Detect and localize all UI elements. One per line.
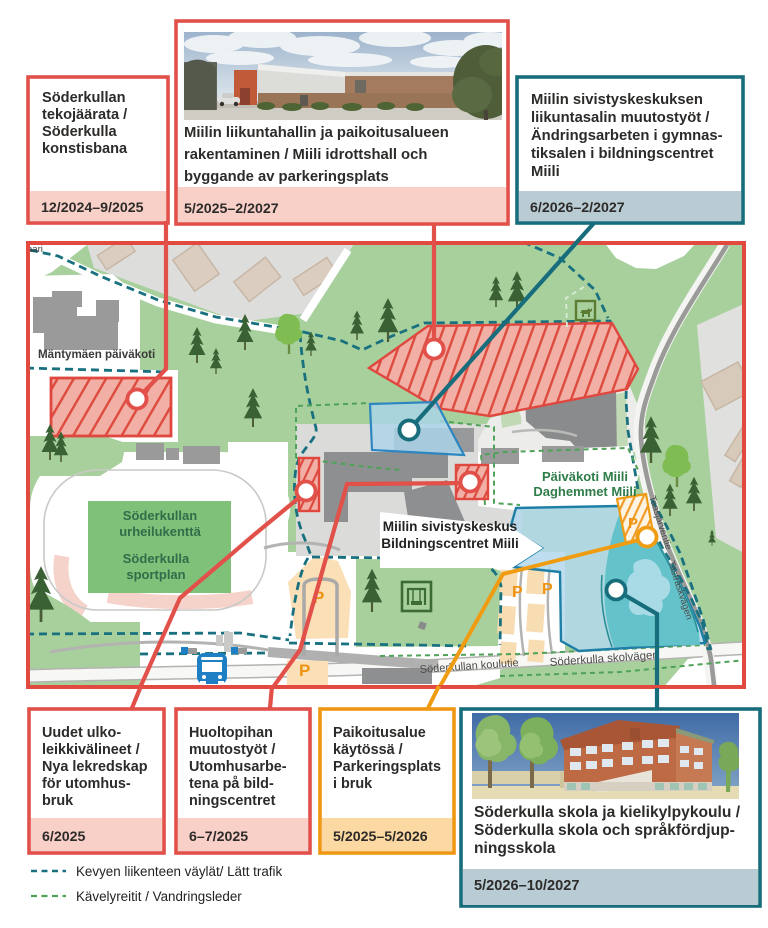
svg-text:tiksalen i bildningscentret: tiksalen i bildningscentret [531, 146, 714, 162]
svg-text:Söderkullan: Söderkullan [123, 508, 197, 523]
svg-text:urheilukenttä: urheilukenttä [119, 524, 201, 539]
svg-text:Miilin sivistyskeskus: Miilin sivistyskeskus [383, 519, 518, 534]
svg-text:bruk: bruk [42, 793, 74, 809]
svg-text:ningscentret: ningscentret [189, 793, 276, 809]
svg-text:tekojäärata /: tekojäärata / [42, 107, 127, 123]
svg-text:Kävelyreitit / Vandringsleder: Kävelyreitit / Vandringsleder [76, 889, 242, 904]
svg-text:5/2026–10/2027: 5/2026–10/2027 [474, 878, 580, 894]
svg-text:5/2025–5/2026: 5/2025–5/2026 [333, 829, 428, 845]
svg-text:P: P [628, 515, 638, 532]
svg-text:i bruk: i bruk [333, 776, 373, 792]
svg-text:Miilin sivistyskeskuksen: Miilin sivistyskeskuksen [531, 92, 703, 108]
svg-text:liikuntasalin muutostyöt /: liikuntasalin muutostyöt / [531, 110, 709, 126]
svg-text:konstisbana: konstisbana [42, 141, 128, 157]
svg-text:byggande av parkeringsplats: byggande av parkeringsplats [184, 169, 389, 185]
svg-text:Söderkullan: Söderkullan [42, 90, 126, 106]
svg-text:12/2024–9/2025: 12/2024–9/2025 [41, 200, 144, 216]
svg-text:P: P [542, 581, 553, 598]
svg-text:Parkeringsplats: Parkeringsplats [333, 759, 441, 775]
svg-text:Nya lekredskap: Nya lekredskap [42, 759, 148, 775]
svg-text:6/2025: 6/2025 [42, 829, 86, 845]
svg-text:5/2025–2/2027: 5/2025–2/2027 [184, 201, 279, 217]
svg-text:Paikoitusalue: Paikoitusalue [333, 725, 426, 741]
svg-text:Söderkulla skola ja kielikylpy: Söderkulla skola ja kielikylpykoulu / [474, 804, 741, 821]
svg-text:Mäntymäen päiväkoti: Mäntymäen päiväkoti [38, 348, 155, 361]
svg-text:Ändringsarbeten i gymnas-: Ändringsarbeten i gymnas- [531, 127, 723, 144]
svg-text:ningsskola: ningsskola [474, 840, 556, 857]
svg-text:Miili: Miili [531, 164, 560, 180]
svg-text:Daghemmet Miili: Daghemmet Miili [533, 484, 636, 499]
svg-text:käytössä /: käytössä / [333, 742, 403, 758]
svg-text:leikkivälineet /: leikkivälineet / [42, 742, 140, 758]
svg-text:Bildningscentret Miili: Bildningscentret Miili [381, 536, 518, 551]
svg-text:rakentaminen / Miili idrottsha: rakentaminen / Miili idrottshall och [184, 147, 427, 163]
svg-text:6/2026–2/2027: 6/2026–2/2027 [530, 200, 625, 216]
svg-text:Söderkulla: Söderkulla [42, 124, 117, 140]
svg-text:Miilin liikuntahallin ja paiko: Miilin liikuntahallin ja paikoitusalueen [184, 125, 449, 141]
svg-text:muutostyöt /: muutostyöt / [189, 742, 275, 758]
svg-text:Söderkulla: Söderkulla [123, 551, 190, 566]
svg-text:Kevyen liikenteen väylät/ Lätt: Kevyen liikenteen väylät/ Lätt trafik [76, 864, 282, 879]
svg-text:Utomhusarbe-: Utomhusarbe- [189, 759, 287, 775]
svg-text:sportplan: sportplan [126, 567, 185, 582]
svg-text:Söderkulla skola och språkförd: Söderkulla skola och språkfördjup- [474, 821, 735, 839]
svg-text:tena på bild-: tena på bild- [189, 776, 274, 792]
svg-text:för utomhus-: för utomhus- [42, 776, 131, 792]
svg-text:P: P [512, 584, 523, 601]
svg-text:P: P [299, 661, 310, 680]
svg-text:6–7/2025: 6–7/2025 [189, 829, 248, 845]
svg-text:Huoltopihan: Huoltopihan [189, 725, 273, 741]
svg-text:Uudet ulko-: Uudet ulko- [42, 725, 121, 741]
svg-text:Päiväkoti Miili: Päiväkoti Miili [542, 469, 628, 484]
